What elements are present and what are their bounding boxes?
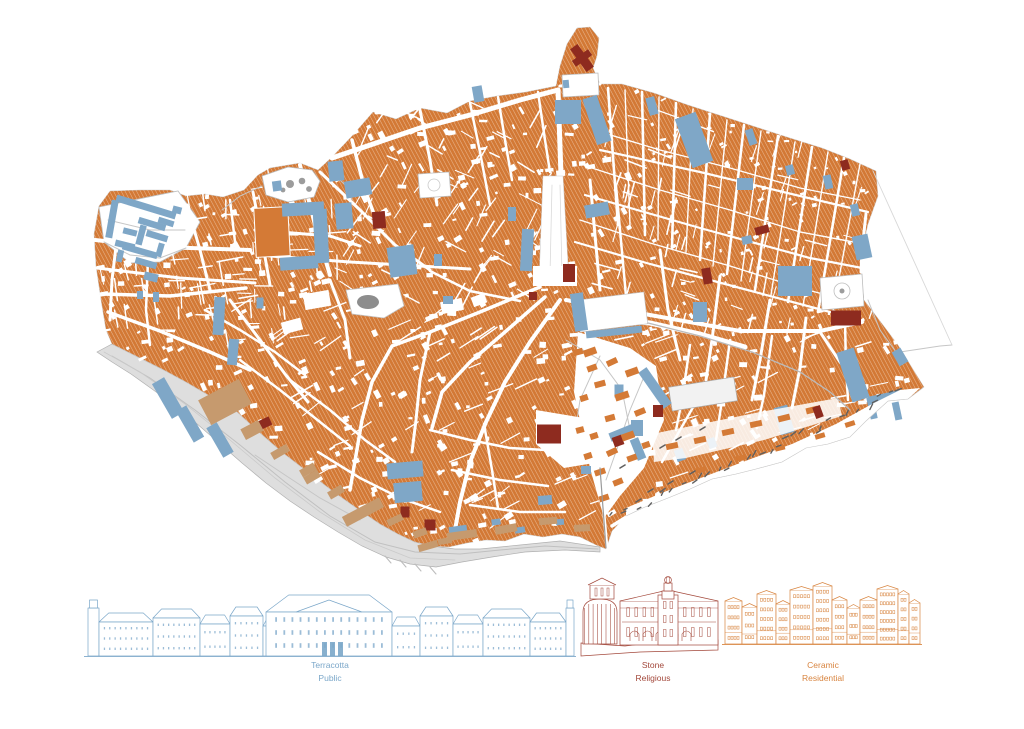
svg-text:Terracotta: Terracotta (311, 660, 349, 670)
svg-text:Stone: Stone (642, 660, 664, 670)
svg-text:Religious: Religious (636, 673, 671, 683)
svg-text:Ceramic: Ceramic (807, 660, 839, 670)
svg-text:Residential: Residential (802, 673, 844, 683)
svg-text:Public: Public (318, 673, 342, 683)
